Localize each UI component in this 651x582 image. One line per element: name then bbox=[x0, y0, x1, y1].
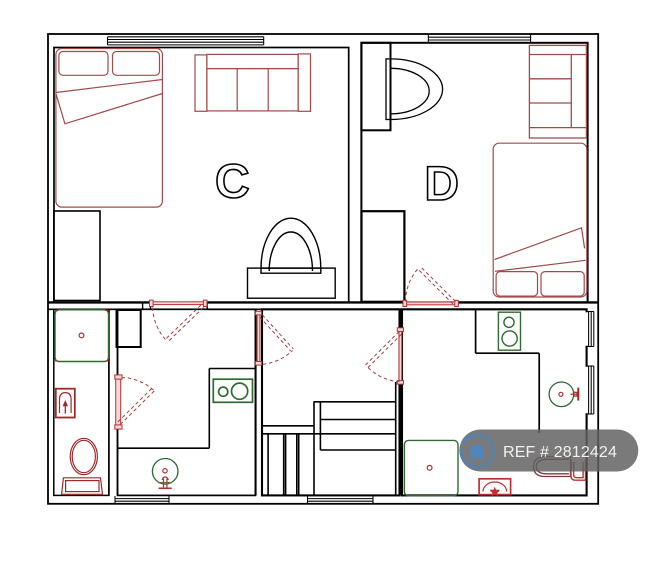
svg-text:D: D bbox=[424, 158, 459, 211]
svg-text:REF # 2812424: REF # 2812424 bbox=[503, 444, 617, 461]
svg-text:C: C bbox=[215, 156, 250, 209]
